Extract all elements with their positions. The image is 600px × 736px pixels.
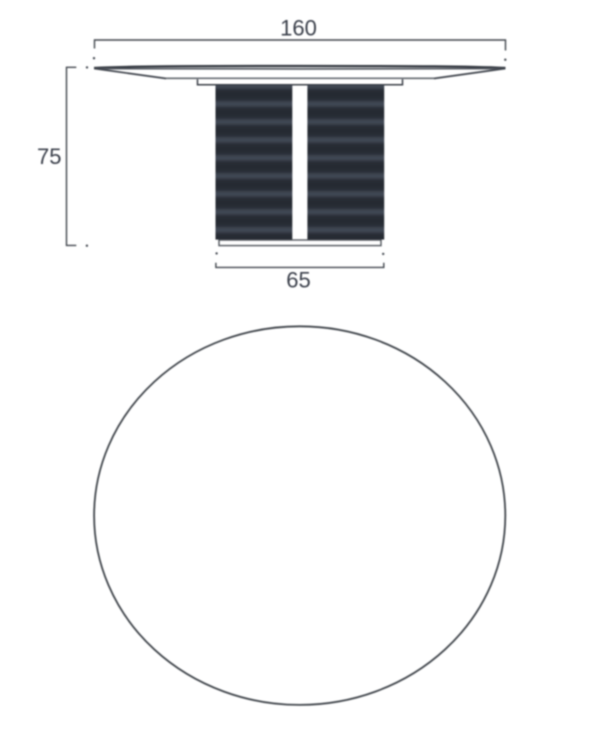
svg-text:75: 75 xyxy=(37,144,61,169)
svg-text:65: 65 xyxy=(286,268,310,293)
svg-text:160: 160 xyxy=(280,16,317,41)
